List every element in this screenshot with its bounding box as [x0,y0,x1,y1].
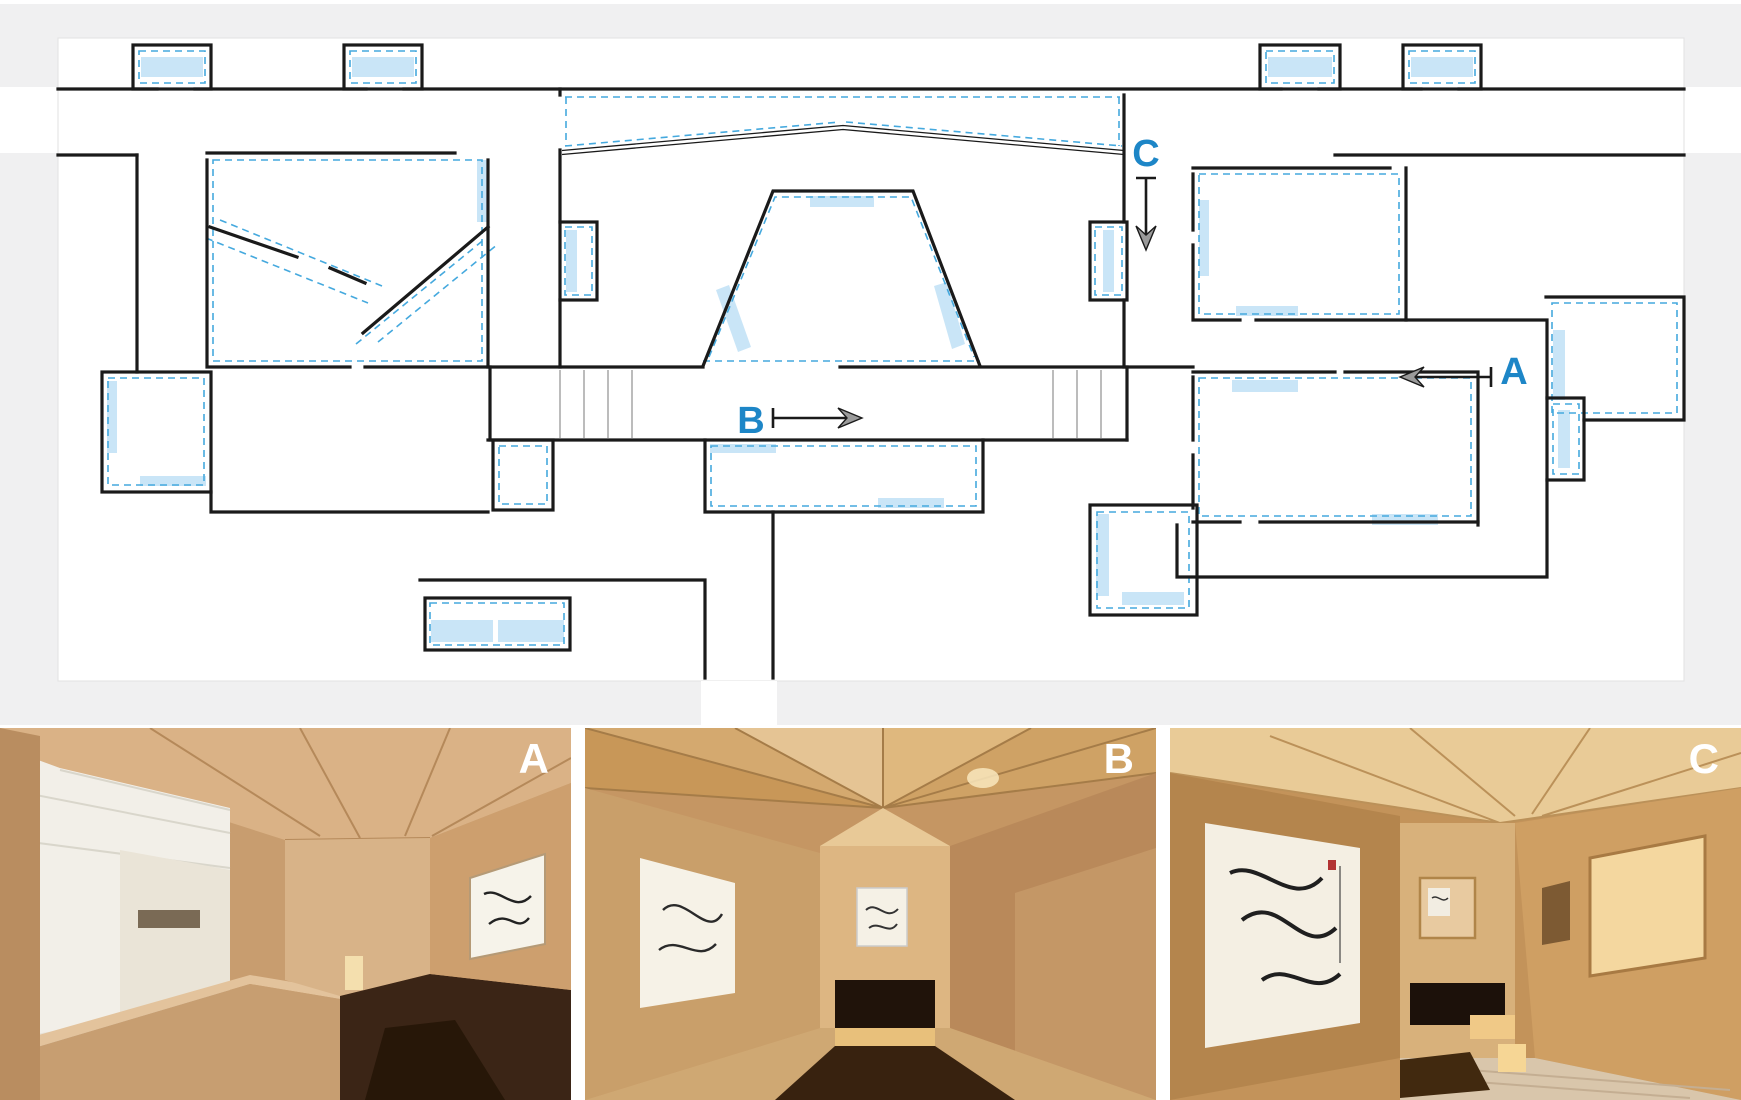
photo-c-render [1170,728,1741,1100]
architecture-sheet: C A B [0,0,1741,1100]
photo-label-b: B [1104,738,1134,780]
photo-b-render [585,728,1156,1100]
floor-plan-panel: C A B [0,0,1741,728]
plan-backgrounds [0,0,1741,728]
photo-a-render [0,728,571,1100]
photo-section-c: C [1170,728,1741,1100]
photo-section-b: B [585,728,1156,1100]
section-marker-b-label: B [737,400,764,442]
section-photo-row: A [0,728,1741,1100]
photo-section-a: A [0,728,571,1100]
section-marker-c-label: C [1132,133,1159,175]
photo-label-a: A [519,738,549,780]
floor-plan-svg: C A B [0,0,1741,728]
section-marker-a-label: A [1500,351,1527,393]
photo-label-c: C [1689,738,1719,780]
